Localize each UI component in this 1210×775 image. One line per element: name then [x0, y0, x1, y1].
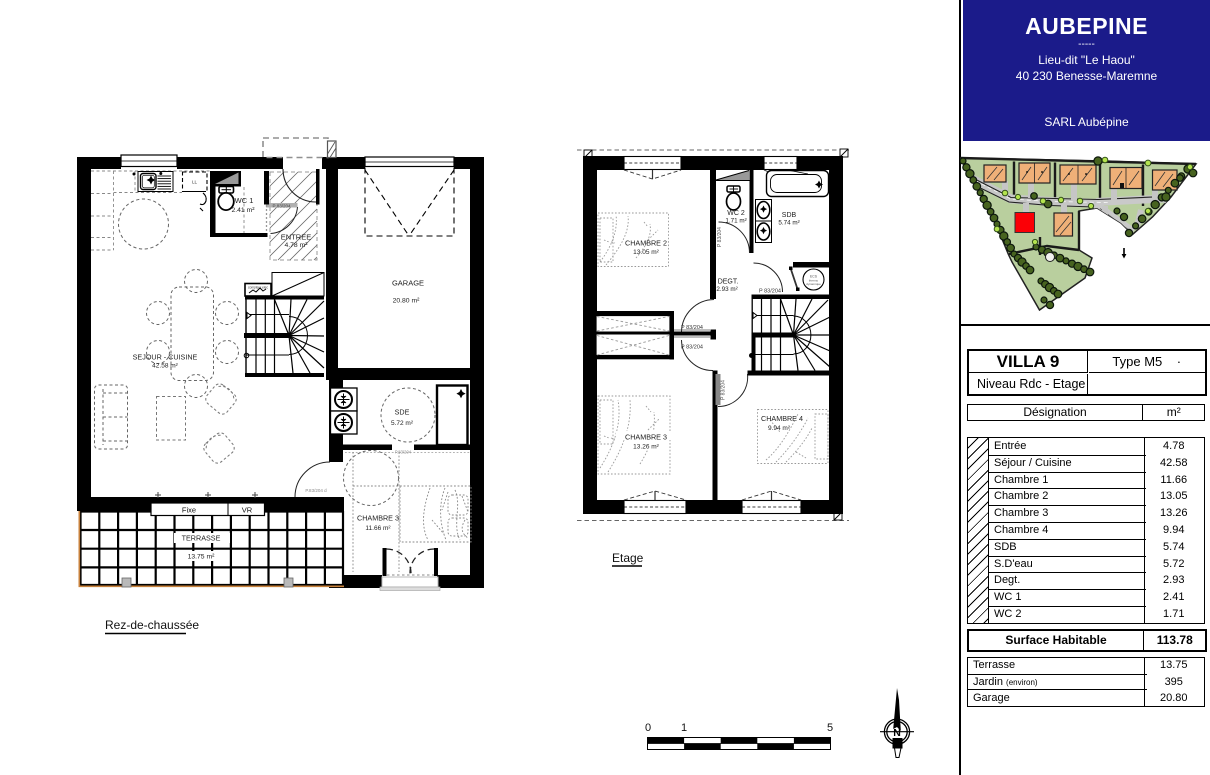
svg-text:TERRASSE: TERRASSE: [182, 534, 221, 543]
svg-text:1: 1: [681, 722, 687, 734]
svg-text:0: 0: [645, 722, 651, 734]
svg-text:11.66 m²: 11.66 m²: [365, 525, 391, 532]
svg-text:P.83/204 d: P.83/204 d: [305, 488, 327, 493]
svg-text:dynamique: dynamique: [806, 282, 821, 286]
svg-text:13.05 m²: 13.05 m²: [633, 249, 659, 256]
svg-text:P.83/204: P.83/204: [395, 450, 412, 455]
svg-text:Rez-de-chaussée: Rez-de-chaussée: [105, 618, 199, 632]
svg-text:WC 2: WC 2: [727, 210, 745, 217]
svg-text:SDE: SDE: [395, 408, 410, 417]
svg-text:CHAMBRE 3: CHAMBRE 3: [625, 433, 667, 442]
svg-text:2.41 m²: 2.41 m²: [231, 207, 255, 214]
svg-text:Fixe: Fixe: [182, 506, 196, 515]
svg-text:5.72 m²: 5.72 m²: [391, 420, 414, 427]
svg-text:Etage: Etage: [612, 551, 644, 565]
svg-text:4.78 m²: 4.78 m²: [284, 242, 308, 249]
svg-text:9.94 m²: 9.94 m²: [768, 425, 791, 432]
svg-text:SDB: SDB: [782, 212, 797, 219]
svg-text:5: 5: [827, 722, 833, 734]
svg-text:2.93 m²: 2.93 m²: [716, 286, 737, 293]
svg-text:P 83/204: P 83/204: [759, 289, 781, 295]
svg-text:VR: VR: [242, 506, 253, 515]
svg-text:P 83/204: P 83/204: [721, 380, 727, 400]
svg-text:P 83/204: P 83/204: [717, 227, 723, 247]
svg-text:P 83/204: P 83/204: [681, 325, 703, 331]
svg-text:13.26 m²: 13.26 m²: [633, 444, 659, 451]
svg-text:GARAGE: GARAGE: [392, 279, 424, 288]
svg-text:CHAMBRE 4: CHAMBRE 4: [761, 414, 803, 423]
svg-text:P 83/204: P 83/204: [273, 204, 291, 209]
svg-text:WC 1: WC 1: [235, 196, 254, 205]
svg-text:13.75 m²: 13.75 m²: [188, 554, 216, 561]
svg-text:ENTREE: ENTREE: [281, 233, 311, 242]
svg-text:5.74 m²: 5.74 m²: [778, 220, 799, 227]
svg-text:LL: LL: [192, 180, 198, 185]
svg-text:SEJOUR - CUISINE: SEJOUR - CUISINE: [133, 353, 198, 362]
svg-text:20.80 m²: 20.80 m²: [393, 298, 421, 305]
svg-text:DEGT.: DEGT.: [718, 279, 739, 286]
svg-text:42.58 m²: 42.58 m²: [152, 363, 178, 370]
svg-text:P 83/204: P 83/204: [681, 345, 703, 351]
svg-text:N: N: [893, 727, 901, 739]
svg-text:CHAMBRE 3: CHAMBRE 3: [357, 514, 399, 523]
svg-text:CHAMBRE 2: CHAMBRE 2: [625, 239, 667, 248]
